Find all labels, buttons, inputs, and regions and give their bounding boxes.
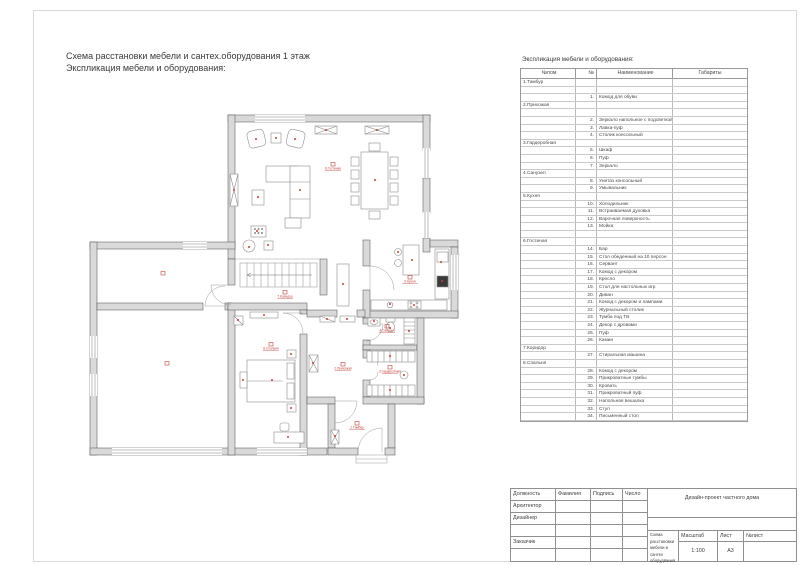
explication-cell: [673, 216, 747, 223]
explication-cell: [597, 193, 673, 200]
explication-cell: Зеркало: [597, 163, 673, 170]
explication-cell: 6.Гостиная: [521, 238, 576, 245]
tb-empty-cell: [556, 549, 591, 561]
explication-cell: 8.Спальня: [521, 360, 576, 367]
explication-cell: 30.: [576, 383, 597, 390]
explication-cell: 28.: [576, 368, 597, 375]
item-number-dot: [411, 259, 413, 261]
explication-cell: [673, 79, 747, 86]
tb-role-label: Дизайнер: [511, 513, 556, 525]
explication-cell: [521, 413, 576, 420]
explication-cell: [673, 132, 747, 139]
explication-cell: 23.: [576, 314, 597, 321]
explication-cell: Встраиваемая духовка: [597, 208, 673, 215]
explication-cell: [673, 352, 747, 359]
explication-cell: 6.: [576, 155, 597, 162]
explication-cell: 25.: [576, 330, 597, 337]
explication-cell: [673, 223, 747, 230]
explication-row: 2.Прихожая: [521, 102, 747, 110]
explication-cell: [521, 284, 576, 291]
explication-cell: [673, 178, 747, 185]
explication-row: 14.Бар: [521, 246, 747, 254]
explication-cell: [673, 102, 747, 109]
tb-empty-cell: [556, 513, 591, 525]
item-number-dot: [346, 318, 348, 320]
explication-cell: [673, 368, 747, 375]
explication-row: 5.Кухня: [521, 193, 747, 201]
tb-empty-cell: [591, 525, 623, 537]
explication-row: 23.Тумба под ТВ: [521, 314, 747, 322]
explication-cell: [673, 307, 747, 314]
explication-row: 6.Гостиная: [521, 238, 747, 246]
explication-cell: 5.Кухня: [521, 193, 576, 200]
explication-cell: 34.: [576, 413, 597, 420]
tb-header-signature: Подпись: [591, 489, 623, 501]
explication-cell: [673, 299, 747, 306]
explication-cell: Унитаз консольный: [597, 178, 673, 185]
room-label: 8.Спальня: [263, 343, 279, 351]
item-number-dot: [440, 261, 442, 263]
explication-cell: [673, 261, 747, 268]
explication-row: 4.Столик консольный: [521, 132, 747, 140]
tb-sheetno-label: №лист: [744, 531, 796, 542]
room-label: 6.Гостиная: [325, 163, 341, 171]
explication-cell: [521, 208, 576, 215]
explication-cell: 16.: [576, 261, 597, 268]
room-label: 7.Коридор: [277, 291, 293, 299]
explication-cell: [597, 140, 673, 147]
explication-cell: [521, 94, 576, 101]
explication-row: 10.Холодильник: [521, 201, 747, 209]
title-block: Должность Фамилия Подпись Число Архитект…: [510, 488, 797, 562]
explication-cell: [521, 375, 576, 382]
explication-row: 24.Декор с дровами: [521, 322, 747, 330]
explication-cell: Пуф: [597, 330, 673, 337]
item-number-dot: [290, 407, 292, 409]
explication-row: 33.Стул: [521, 406, 747, 414]
writing-desk: [274, 432, 304, 443]
explication-cell: [521, 383, 576, 390]
tb-sheet-label: Лист: [718, 531, 744, 542]
explication-cell: Комод для обуви: [597, 94, 673, 101]
explication-row: [521, 87, 747, 95]
svg-text:7.Коридор: 7.Коридор: [277, 295, 292, 299]
tb-empty-cell: [623, 501, 648, 513]
explication-cell: Стол обеденный на 10 персон: [597, 254, 673, 261]
tb-empty-cell: [623, 549, 648, 561]
explication-cell: Прикроватный пуф: [597, 390, 673, 397]
tb-empty-cell: [591, 537, 623, 549]
explication-cell: [521, 406, 576, 413]
explication-cell: [521, 390, 576, 397]
explication-row: 9.Умывальник: [521, 185, 747, 193]
item-number-dot: [294, 138, 296, 140]
tb-sheetno-value: [744, 542, 796, 561]
explication-cell: [576, 79, 597, 86]
explication-row: 16.Сервант: [521, 261, 747, 269]
wardrobe-shelving: [367, 351, 415, 362]
explication-cell: [576, 87, 597, 94]
explication-row: 20.Диван: [521, 292, 747, 300]
explication-cell: [673, 246, 747, 253]
explication-cell: [521, 322, 576, 329]
explication-cell: 10.: [576, 201, 597, 208]
explication-cell: [673, 398, 747, 405]
explication-cell: [673, 375, 747, 382]
explication-cell: Прикроватные тумбы: [597, 375, 673, 382]
explication-cell: [673, 314, 747, 321]
explication-cell: 24.: [576, 322, 597, 329]
explication-header-row: №пом № Наименование Габариты: [521, 69, 747, 79]
explication-cell: 20.: [576, 292, 597, 299]
tb-project-title: Дизайн-проект частного дома: [648, 489, 796, 518]
explication-cell: [673, 87, 747, 94]
explication-row: 13.Мойка: [521, 223, 747, 231]
explication-row: [521, 109, 747, 117]
explication-cell: [673, 140, 747, 147]
explication-cell: [521, 201, 576, 208]
entrance-porch: [356, 455, 387, 463]
explication-cell: [673, 238, 747, 245]
explication-row: 5.Шкаф: [521, 147, 747, 155]
explication-cell: Письменный стол: [597, 413, 673, 420]
explication-cell: 21.: [576, 299, 597, 306]
explication-cell: [576, 238, 597, 245]
explication-cell: 7.: [576, 163, 597, 170]
explication-cell: [673, 413, 747, 420]
explication-cell: [673, 163, 747, 170]
explication-row: 15.Стол обеденный на 10 персон: [521, 254, 747, 262]
explication-cell: [521, 254, 576, 261]
explication-cell: [597, 87, 673, 94]
explication-cell: Диван: [597, 292, 673, 299]
explication-cell: 33.: [576, 406, 597, 413]
explication-row: 30.Кровать: [521, 383, 747, 391]
explication-cell: Комод с декором: [597, 269, 673, 276]
item-number-dot: [275, 137, 277, 139]
tb-empty-cell: [623, 513, 648, 525]
explication-cell: [673, 155, 747, 162]
explication-cell: 3.Гардеробная: [521, 140, 576, 147]
explication-cell: Камин: [597, 337, 673, 344]
explication-row: 7.Коридор: [521, 345, 747, 353]
explication-cell: [673, 390, 747, 397]
svg-text:5.Кухня: 5.Кухня: [404, 280, 415, 284]
explication-cell: Пуф: [597, 155, 673, 162]
explication-cell: [521, 155, 576, 162]
explication-cell: [521, 246, 576, 253]
explication-cell: [521, 125, 576, 132]
corner-sofa: [266, 166, 310, 228]
explication-cell: [521, 269, 576, 276]
item-number-dot: [376, 129, 378, 131]
explication-row: 31.Прикроватный пуф: [521, 390, 747, 398]
tb-empty-cell: [591, 513, 623, 525]
item-number-dot: [271, 379, 273, 381]
explication-cell: 7.Коридор: [521, 345, 576, 352]
column-header-dims: Габариты: [673, 69, 747, 78]
page-title-line2: Экспликация мебели и оборудования:: [66, 63, 310, 75]
explication-cell: [521, 147, 576, 154]
column-header-name: Наименование: [597, 69, 673, 78]
explication-cell: 5.: [576, 147, 597, 154]
explication-cell: 32.: [576, 398, 597, 405]
explication-cell: Журнальный столик: [597, 307, 673, 314]
explication-cell: [576, 170, 597, 177]
explication-row: 1.Тамбур: [521, 79, 747, 87]
explication-row: 19.Стол для настольных игр: [521, 284, 747, 292]
explication-row: 22.Журнальный столик: [521, 307, 747, 315]
explication-cell: 4.Санузел: [521, 170, 576, 177]
fridge: [437, 252, 448, 262]
explication-cell: [673, 284, 747, 291]
explication-row: 34.Письменный стол: [521, 413, 747, 421]
tb-header-position: Должность: [511, 489, 556, 501]
explication-cell: [521, 132, 576, 139]
item-number-dot: [389, 303, 391, 305]
explication-cell: [521, 231, 576, 238]
explication-table: №пом № Наименование Габариты 1.Тамбур1.К…: [520, 68, 748, 422]
explication-cell: [597, 102, 673, 109]
explication-cell: [521, 117, 576, 124]
explication-cell: [673, 337, 747, 344]
explication-cell: [673, 109, 747, 116]
explication-cell: [673, 185, 747, 192]
explication-cell: [597, 170, 673, 177]
explication-cell: [521, 261, 576, 268]
item-number-dot: [342, 283, 344, 285]
explication-cell: 27.: [576, 352, 597, 359]
drawing-sheet: { "page": { "title_line1": "Схема расста…: [0, 0, 800, 565]
explication-cell: Столик консольный: [597, 132, 673, 139]
explication-row: 2.Зеркало напольное с подсветкой: [521, 117, 747, 125]
explication-cell: [521, 368, 576, 375]
svg-text:3.Гардеробная: 3.Гардеробная: [379, 370, 401, 374]
item-number-dot: [257, 196, 259, 198]
wardrobe-shelving: [367, 385, 415, 396]
explication-cell: [673, 193, 747, 200]
page-title-line1: Схема расстановки мебели и сантех.оборуд…: [66, 51, 310, 63]
tb-drawing-title: Схема расстановки мебели и сантех оборуд…: [648, 531, 679, 561]
explication-row: 21.Комод с декором и лампами: [521, 299, 747, 307]
explication-row: 8.Спальня: [521, 360, 747, 368]
item-number-dot: [408, 330, 410, 332]
item-number-dot: [287, 436, 289, 438]
item-number-dot: [334, 435, 336, 437]
explication-row: 1.Комод для обуви: [521, 94, 747, 102]
svg-text:2.Прихожая: 2.Прихожая: [334, 367, 352, 371]
explication-cell: [521, 337, 576, 344]
explication-row: 25.Пуф: [521, 330, 747, 338]
explication-cell: Кресло: [597, 276, 673, 283]
item-number-dot: [242, 379, 244, 381]
explication-row: 7.Зеркало: [521, 163, 747, 171]
staircase: [235, 259, 320, 287]
explication-cell: 4.: [576, 132, 597, 139]
item-number-dot: [233, 189, 235, 191]
bar-stool: [395, 260, 402, 267]
explication-cell: [521, 109, 576, 116]
explication-cell: [576, 345, 597, 352]
explication-cell: [521, 330, 576, 337]
explication-cell: [576, 109, 597, 116]
explication-cell: Стиральная машина: [597, 352, 673, 359]
explication-cell: 19.: [576, 284, 597, 291]
explication-cell: [576, 231, 597, 238]
explication-cell: [673, 254, 747, 261]
explication-row: 32.Напольная вешалка: [521, 398, 747, 406]
tb-role-label: Архитектор: [511, 501, 556, 513]
page-title: Схема расстановки мебели и сантех.оборуд…: [66, 51, 310, 74]
explication-cell: Бар: [597, 246, 673, 253]
dining-table-set: [351, 143, 398, 219]
explication-cell: 26.: [576, 337, 597, 344]
item-number-dot: [267, 244, 269, 246]
explication-cell: 31.: [576, 390, 597, 397]
explication-cell: 2.Прихожая: [521, 102, 576, 109]
explication-cell: 1.Тамбур: [521, 79, 576, 86]
explication-cell: [673, 208, 747, 215]
item-number-dot: [373, 320, 375, 322]
item-number-dot: [413, 304, 415, 306]
room-label: 2.Прихожая: [334, 363, 352, 371]
explication-cell: [597, 238, 673, 245]
explication-cell: Напольная вешалка: [597, 398, 673, 405]
explication-cell: Мойка: [597, 223, 673, 230]
tb-empty-cell: [556, 537, 591, 549]
explication-cell: 13.: [576, 223, 597, 230]
explication-cell: 8.: [576, 178, 597, 185]
explication-cell: Холодильник: [597, 201, 673, 208]
explication-cell: 2.: [576, 117, 597, 124]
item-number-dot: [325, 129, 327, 131]
item-number-dot: [389, 355, 391, 357]
explication-cell: [673, 360, 747, 367]
explication-cell: [673, 292, 747, 299]
explication-row: 28.Комод с декором: [521, 368, 747, 376]
explication-cell: [521, 178, 576, 185]
item-number-dot: [237, 319, 239, 321]
explication-cell: [673, 345, 747, 352]
tb-role-label: [511, 525, 556, 537]
tb-role-label: Заказчик: [511, 537, 556, 549]
explication-cell: [673, 330, 747, 337]
explication-cell: [521, 185, 576, 192]
explication-cell: [521, 292, 576, 299]
explication-cell: 9.: [576, 185, 597, 192]
explication-row: 3.Гардеробная: [521, 140, 747, 148]
explication-row: 11.Встраиваемая духовка: [521, 208, 747, 216]
room-label: 3.Гардеробная: [379, 366, 401, 374]
explication-row: 17.Комод с декором: [521, 269, 747, 277]
chair: [280, 423, 289, 431]
floor-plan: 6.Гостиная5.Кухня7.Коридор8.Спальня4.Сан…: [82, 105, 482, 478]
explication-cell: [597, 345, 673, 352]
explication-cell: [597, 109, 673, 116]
explication-cell: [521, 87, 576, 94]
item-number-dot: [299, 189, 301, 191]
tb-empty-cell: [556, 501, 591, 513]
explication-cell: [521, 352, 576, 359]
item-number-dot: [248, 246, 250, 248]
item-number-dot: [263, 314, 265, 316]
explication-cell: [521, 163, 576, 170]
explication-body: 1.Тамбур1.Комод для обуви2.Прихожая2.Зер…: [521, 79, 747, 421]
explication-row: 8.Унитаз консольный: [521, 178, 747, 186]
tb-scale-value: 1:100: [679, 542, 718, 561]
tb-role-label: [511, 549, 556, 561]
explication-row: [521, 231, 747, 239]
explication-cell: 15.: [576, 254, 597, 261]
item-number-dot: [403, 374, 405, 376]
explication-cell: [576, 102, 597, 109]
explication-cell: 22.: [576, 307, 597, 314]
explication-cell: [673, 125, 747, 132]
explication-cell: Лавка-пуф: [597, 125, 673, 132]
explication-row: 18.Кресло: [521, 276, 747, 284]
explication-cell: [576, 193, 597, 200]
explication-cell: [597, 231, 673, 238]
explication-cell: Тумба под ТВ: [597, 314, 673, 321]
room-label: 5.Кухня: [402, 276, 418, 284]
svg-text:1.Тамбур: 1.Тамбур: [350, 426, 364, 430]
room-label: [165, 362, 169, 366]
tb-scale-label: Масштаб: [679, 531, 718, 542]
explication-cell: 3.: [576, 125, 597, 132]
explication-cell: Умывальник: [597, 185, 673, 192]
explication-cell: 29.: [576, 375, 597, 382]
tb-header-surname: Фамилия: [556, 489, 591, 501]
svg-text:8.Спальня: 8.Спальня: [263, 347, 279, 351]
explication-cell: [521, 398, 576, 405]
item-number-dot: [389, 389, 391, 391]
explication-cell: [673, 269, 747, 276]
column-header-pom: №пом: [521, 69, 576, 78]
explication-cell: [521, 276, 576, 283]
item-number-dot: [441, 280, 443, 282]
svg-text:6.Гостиная: 6.Гостиная: [325, 167, 341, 171]
explication-cell: 17.: [576, 269, 597, 276]
item-number-dot: [374, 179, 376, 181]
explication-cell: Сервант: [597, 261, 673, 268]
explication-cell: [673, 94, 747, 101]
explication-cell: [673, 117, 747, 124]
explication-cell: [673, 170, 747, 177]
explication-cell: [521, 307, 576, 314]
explication-cell: 14.: [576, 246, 597, 253]
explication-cell: [521, 216, 576, 223]
item-number-dot: [312, 362, 314, 364]
bed: [247, 360, 295, 402]
explication-cell: Декор с дровами: [597, 322, 673, 329]
explication-row: 27.Стиральная машина: [521, 352, 747, 360]
explication-cell: [673, 383, 747, 390]
explication-cell: [521, 223, 576, 230]
svg-text:4.Санузел: 4.Санузел: [379, 329, 394, 333]
explication-row: 26.Камин: [521, 337, 747, 345]
explication-cell: 18.: [576, 276, 597, 283]
explication-cell: Варочная поверхность: [597, 216, 673, 223]
explication-row: 12.Варочная поверхность: [521, 216, 747, 224]
item-number-dot: [255, 138, 257, 140]
explication-title: Экспликация мебели и оборудования:: [522, 56, 634, 63]
bar-cabinet: [251, 226, 266, 237]
explication-row: 3.Лавка-пуф: [521, 125, 747, 133]
room-label: 1.Тамбур: [349, 422, 365, 430]
explication-cell: [673, 231, 747, 238]
tb-empty-cell: [623, 525, 648, 537]
explication-cell: [673, 147, 747, 154]
